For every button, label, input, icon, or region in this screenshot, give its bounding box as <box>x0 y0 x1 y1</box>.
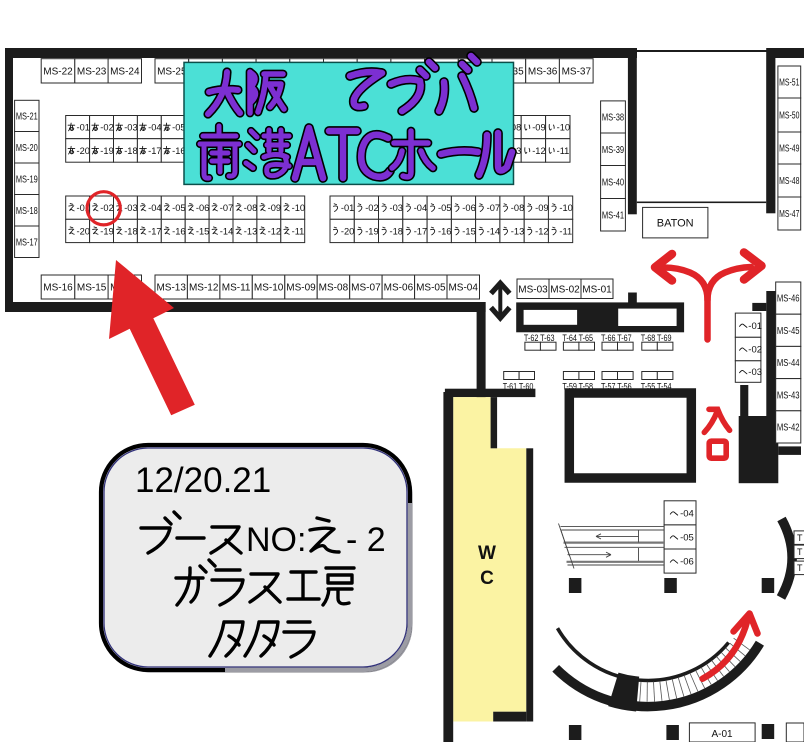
svg-text:-06: -06 <box>196 203 209 213</box>
svg-text:MS-10: MS-10 <box>254 283 284 294</box>
svg-text:MS-41: MS-41 <box>602 210 625 221</box>
svg-text:-02: -02 <box>365 203 378 213</box>
svg-text:-19: -19 <box>100 226 113 236</box>
svg-text:MS-39: MS-39 <box>602 145 625 156</box>
svg-text:MS-03: MS-03 <box>518 284 548 295</box>
svg-text:-05: -05 <box>438 203 451 213</box>
svg-text:-06: -06 <box>680 557 694 568</box>
svg-text:-11: -11 <box>292 226 305 236</box>
svg-text:MS-43: MS-43 <box>777 390 800 401</box>
svg-text:MS-20: MS-20 <box>16 143 38 154</box>
svg-text:-11: -11 <box>557 146 570 156</box>
svg-text:-19: -19 <box>365 226 378 236</box>
svg-text:-12: -12 <box>535 226 548 236</box>
svg-text:-04: -04 <box>148 123 161 133</box>
svg-text:-13: -13 <box>244 226 257 236</box>
svg-text:-08: -08 <box>511 203 524 213</box>
svg-text:-10: -10 <box>292 203 305 213</box>
svg-text:MS-38: MS-38 <box>602 113 625 124</box>
svg-text:-20: -20 <box>341 226 354 236</box>
svg-text:MS-08: MS-08 <box>319 283 349 294</box>
svg-text:T: T <box>797 547 803 557</box>
svg-text:-06: -06 <box>462 203 475 213</box>
svg-text:-17: -17 <box>148 146 161 156</box>
svg-text:-01: -01 <box>341 203 354 213</box>
svg-text:-01: -01 <box>77 123 90 133</box>
svg-text:MS-40: MS-40 <box>602 178 625 189</box>
svg-text:-20: -20 <box>77 146 90 156</box>
svg-text:MS-45: MS-45 <box>777 326 800 337</box>
svg-text:MS-22: MS-22 <box>43 67 73 78</box>
svg-text:MS-02: MS-02 <box>550 284 580 295</box>
svg-text:C: C <box>480 568 494 589</box>
svg-text:-01: -01 <box>748 321 762 332</box>
svg-text:-18: -18 <box>390 226 403 236</box>
svg-text:A-01: A-01 <box>711 729 733 740</box>
svg-text:-09: -09 <box>535 203 548 213</box>
svg-text:MS-01: MS-01 <box>582 284 612 295</box>
svg-text:MS-09: MS-09 <box>286 283 316 294</box>
svg-text:W: W <box>478 543 496 564</box>
svg-text:-09: -09 <box>532 123 545 133</box>
svg-text:-04: -04 <box>414 203 427 213</box>
svg-text:MS-18: MS-18 <box>16 206 38 217</box>
svg-text:MS-36: MS-36 <box>528 67 558 78</box>
svg-text:MS-24: MS-24 <box>110 67 140 78</box>
svg-text:-03: -03 <box>124 123 137 133</box>
svg-text:-03: -03 <box>390 203 403 213</box>
svg-text:MS-23: MS-23 <box>77 67 107 78</box>
svg-text:-18: -18 <box>124 226 137 236</box>
svg-text:MS-47: MS-47 <box>779 209 800 220</box>
svg-text:-12: -12 <box>268 226 281 236</box>
svg-text:MS-05: MS-05 <box>416 283 446 294</box>
svg-text:-11: -11 <box>559 226 572 236</box>
svg-text:MS-04: MS-04 <box>448 283 478 294</box>
svg-text:-04: -04 <box>148 203 161 213</box>
svg-text:MS-13: MS-13 <box>156 283 186 294</box>
svg-text:MS-46: MS-46 <box>777 294 800 305</box>
svg-text:MS-49: MS-49 <box>779 144 800 155</box>
svg-text:-09: -09 <box>268 203 281 213</box>
svg-text:-07: -07 <box>487 203 500 213</box>
svg-text:-10: -10 <box>559 203 572 213</box>
svg-text:T: T <box>797 563 803 573</box>
svg-text:-18: -18 <box>124 146 137 156</box>
svg-text:MS-21: MS-21 <box>16 112 38 123</box>
svg-text:MS-17: MS-17 <box>16 237 38 248</box>
svg-text:-14: -14 <box>220 226 233 236</box>
svg-text:12/20.21: 12/20.21 <box>135 461 271 500</box>
svg-text:MS-06: MS-06 <box>384 283 414 294</box>
svg-text:MS-19: MS-19 <box>16 174 38 185</box>
svg-text:MS-11: MS-11 <box>222 283 251 294</box>
svg-text:MS-37: MS-37 <box>562 67 592 78</box>
svg-text:-15: -15 <box>462 226 475 236</box>
svg-text:MS-42: MS-42 <box>777 423 800 434</box>
svg-text:-19: -19 <box>100 146 113 156</box>
svg-text:-02: -02 <box>100 123 113 133</box>
svg-text:NO:: NO: <box>246 521 306 559</box>
svg-text:-10: -10 <box>557 123 570 133</box>
svg-text:-04: -04 <box>680 509 694 520</box>
svg-text:-03: -03 <box>748 367 762 378</box>
svg-text:MS-07: MS-07 <box>351 283 381 294</box>
svg-text:MS-15: MS-15 <box>77 283 107 294</box>
svg-text:MS-48: MS-48 <box>779 176 800 187</box>
svg-text:-13: -13 <box>511 226 524 236</box>
svg-text:MS-44: MS-44 <box>777 358 800 369</box>
svg-text:-20: -20 <box>77 226 90 236</box>
svg-text:-02: -02 <box>100 203 113 213</box>
svg-text:-02: -02 <box>748 345 762 356</box>
svg-text:MS-16: MS-16 <box>43 283 73 294</box>
svg-text:- 2: - 2 <box>346 521 386 559</box>
svg-text:-05: -05 <box>680 533 694 544</box>
svg-text:-15: -15 <box>196 226 209 236</box>
svg-text:-05: -05 <box>172 203 185 213</box>
svg-text:-12: -12 <box>532 146 545 156</box>
svg-text:-08: -08 <box>244 203 257 213</box>
svg-text:-16: -16 <box>438 226 451 236</box>
svg-text:BATON: BATON <box>657 218 694 230</box>
svg-text:-03: -03 <box>124 203 137 213</box>
svg-text:MS-50: MS-50 <box>779 111 800 122</box>
svg-text:-07: -07 <box>220 203 233 213</box>
svg-text:-17: -17 <box>148 226 161 236</box>
svg-text:-14: -14 <box>487 226 500 236</box>
svg-text:-16: -16 <box>172 226 185 236</box>
svg-text:MS-51: MS-51 <box>779 78 800 89</box>
svg-text:T: T <box>797 533 803 543</box>
svg-text:MS-25: MS-25 <box>157 67 187 78</box>
svg-text:MS-12: MS-12 <box>189 283 219 294</box>
svg-text:-17: -17 <box>414 226 427 236</box>
